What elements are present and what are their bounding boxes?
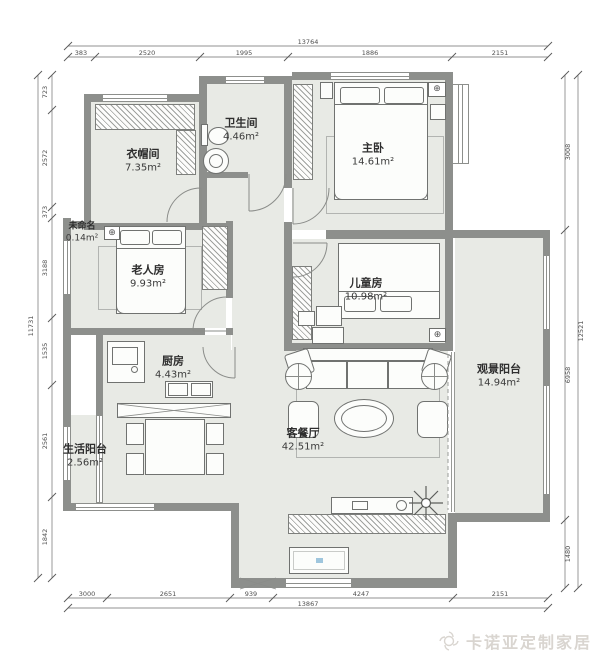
kids-cabinet (312, 327, 344, 344)
burner-icon (168, 383, 188, 396)
side-table (285, 363, 312, 390)
window (543, 385, 550, 495)
room-label-master: 主卧 14.61m² (352, 141, 394, 168)
window (330, 72, 410, 80)
wall-segment (284, 76, 292, 188)
nightstand (430, 104, 446, 120)
dining-chair (126, 423, 144, 445)
pillow (384, 87, 424, 104)
wall-segment (63, 328, 205, 335)
dining-chair (126, 453, 144, 475)
room-label-cloakroom: 衣帽间 7.35m² (125, 147, 161, 174)
dimension-value: 373 (41, 206, 49, 218)
ac-icon: ⊕ (104, 226, 120, 240)
watermark-text: 卡诺亚定制家居 (466, 629, 592, 653)
kids-desk (316, 306, 342, 326)
room-label-unnamed: 未命名 0.14m² (66, 221, 98, 244)
tv-speaker-icon (396, 500, 407, 511)
dimension-value: 1535 (41, 343, 49, 360)
ac-icon: ⊕ (429, 328, 446, 342)
wall-segment (352, 578, 457, 588)
room-label-bathroom: 卫生间 4.46m² (223, 116, 259, 143)
wall-segment (199, 172, 207, 230)
dimension-value: 2151 (492, 590, 509, 598)
dining-chair (206, 423, 224, 445)
room-label-elder-room: 老人房 9.93m² (130, 263, 166, 290)
entry-mat-logo (316, 558, 323, 563)
dimension-value: 12521 (577, 321, 585, 342)
elder-wardrobe (202, 226, 228, 290)
dimension-value: 13764 (298, 38, 319, 46)
flower-logo-icon (438, 630, 460, 652)
side-table (421, 363, 448, 390)
entry-threshold (285, 578, 352, 588)
dimension-value: 1886 (362, 49, 379, 57)
room-label-living-dining: 客餐厅 42.51m² (282, 426, 324, 453)
room-label-life-balcony: 生活阳台 2.56m² (63, 442, 107, 469)
dimension-value: 1842 (41, 529, 49, 546)
coffee-table-inner (341, 405, 387, 432)
dining-table (145, 419, 205, 475)
window (543, 255, 550, 330)
dimension-value: 3008 (564, 144, 572, 161)
washing-machine-drum (209, 154, 223, 168)
ac-icon: ⊕ (428, 82, 446, 97)
floor-plan: ⊕ ⊕ ⊕ (0, 0, 616, 665)
dimension-value: 6958 (564, 367, 572, 384)
vestibule-floor (207, 172, 284, 230)
wall-segment (84, 94, 102, 102)
wall-segment (284, 239, 292, 350)
wall-segment (326, 230, 453, 239)
nightstand (320, 82, 333, 99)
wall-segment (448, 513, 550, 522)
master-closet (293, 84, 313, 180)
dimension-value: 723 (41, 86, 49, 98)
sofa-seat (347, 361, 388, 389)
sideboard (117, 403, 231, 418)
pillow (152, 230, 182, 245)
sofa-back (303, 348, 433, 361)
dimension-value: 1480 (564, 546, 572, 563)
dimension-value: 2572 (41, 150, 49, 167)
dimension-value: 2561 (41, 433, 49, 450)
kids-closet (292, 266, 312, 340)
armchair (417, 401, 448, 438)
bay-window (452, 84, 469, 164)
window (102, 94, 168, 102)
dimension-value: 2151 (492, 49, 509, 57)
wall-segment (199, 172, 248, 178)
window (63, 240, 71, 295)
wall-segment (231, 503, 239, 588)
pillow (120, 230, 150, 245)
kitchen-sink (112, 347, 138, 365)
tv-box (352, 501, 368, 510)
dimension-value: 13867 (298, 600, 319, 608)
burner-icon (191, 383, 211, 396)
wall-segment (84, 94, 91, 230)
dimension-value: 2520 (139, 49, 156, 57)
wall-segment (226, 328, 233, 335)
dimension-value: 939 (245, 590, 257, 598)
dining-chair (206, 453, 224, 475)
brand-watermark: 卡诺亚定制家居 (438, 629, 592, 653)
dimension-value: 3000 (79, 590, 96, 598)
wall-segment (445, 238, 453, 350)
dimension-value: 1995 (236, 49, 253, 57)
wall-segment (448, 513, 457, 588)
cloakroom-wardrobe-side (176, 130, 196, 175)
kids-chair (298, 311, 315, 326)
dimension-value: 3188 (41, 260, 49, 277)
room-label-kitchen: 厨房 4.43m² (155, 354, 191, 381)
toilet-tank (201, 124, 208, 146)
room-label-view-balcony: 观景阳台 14.94m² (477, 362, 521, 389)
window (75, 503, 155, 511)
pillow (340, 87, 380, 104)
wall-segment (231, 578, 285, 588)
wall-segment (448, 230, 550, 238)
wall-segment (284, 230, 292, 239)
dimension-value: 4247 (353, 590, 370, 598)
wall-segment (96, 328, 103, 415)
room-label-kids-room: 儿童房 10.98m² (345, 276, 387, 303)
corridor-floor (232, 230, 284, 350)
faucet-icon (131, 366, 138, 373)
dimension-value: 383 (75, 49, 87, 57)
window (225, 76, 265, 84)
cloakroom-wardrobe (95, 104, 195, 130)
dimension-value: 2651 (160, 590, 177, 598)
tv-cabinet (288, 514, 446, 534)
dimension-value: 11731 (27, 316, 35, 337)
